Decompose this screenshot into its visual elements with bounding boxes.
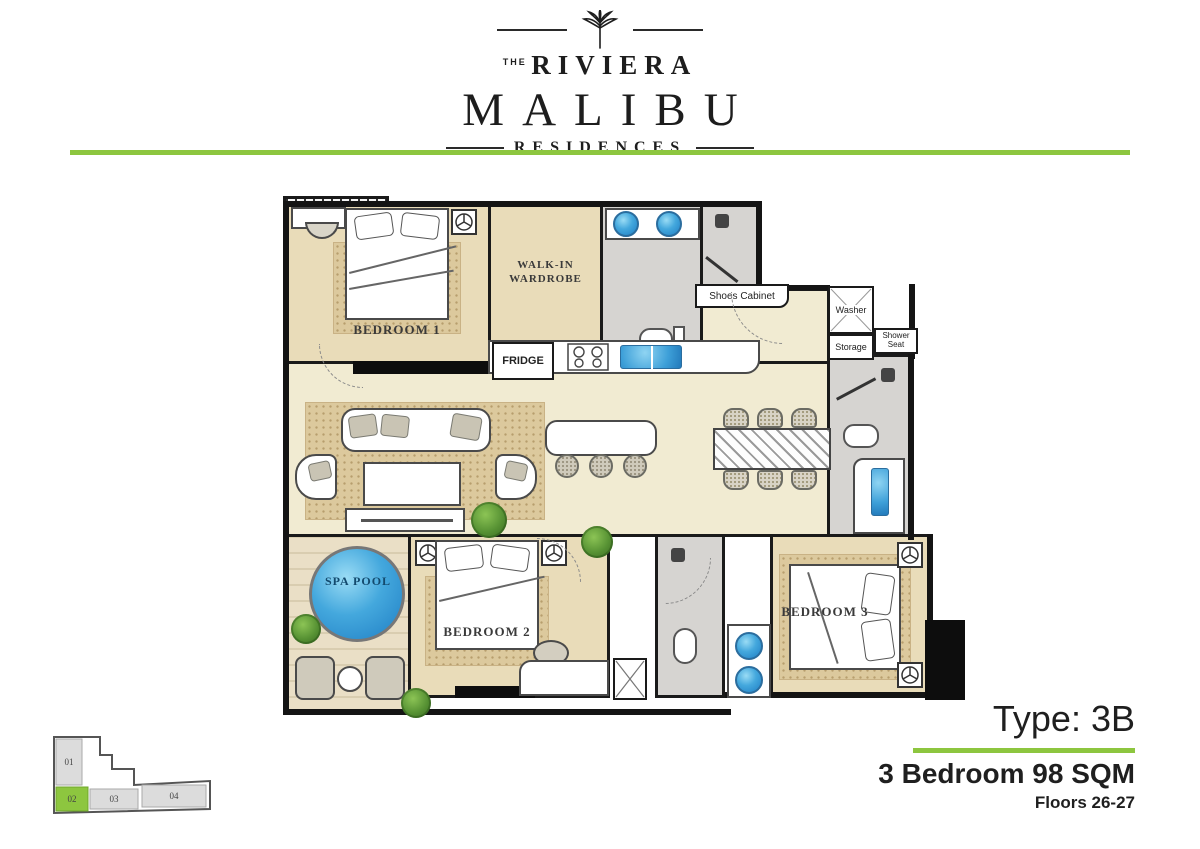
brand-title: MALIBU	[0, 83, 1200, 137]
armchair-cushion	[307, 460, 332, 482]
unit-01-label: 01	[65, 757, 74, 767]
sofa-cushion	[449, 413, 483, 442]
pillow	[860, 618, 895, 662]
kitchen-counter-dark	[353, 361, 491, 374]
dining-chair	[791, 470, 817, 490]
unit-02-label: 02	[68, 794, 77, 804]
sofa-cushion	[348, 413, 379, 439]
wall-bath2-right	[908, 354, 914, 540]
brand-logo: THE RIVIERA MALIBU RESIDENCES	[0, 10, 1200, 157]
unit-04-label: 04	[170, 791, 180, 801]
bar-stool	[555, 454, 579, 478]
dining-chair	[757, 470, 783, 490]
plant	[291, 614, 321, 644]
plant	[401, 688, 431, 718]
building-key-plan: 01 02 03 04	[42, 733, 232, 823]
kitchen-sink	[620, 345, 682, 369]
wall-right-upper	[756, 201, 762, 291]
shower-head-icon	[881, 368, 895, 382]
dining-chair	[791, 408, 817, 428]
toilet	[843, 424, 879, 448]
dining-chair	[723, 470, 749, 490]
unit-floors-label: Floors 26-27	[1035, 793, 1135, 813]
bedroom2-label: BEDROOM 2	[425, 624, 549, 640]
armchair	[495, 454, 537, 500]
unit-type-label: Type: 3B	[993, 698, 1135, 740]
toilet	[673, 628, 697, 664]
storage-box: Storage	[828, 334, 874, 360]
brand-name: RIVIERA	[531, 50, 697, 80]
sofa	[341, 408, 491, 452]
subtitle-line-left	[446, 147, 504, 149]
dining-chair	[723, 408, 749, 428]
armchair	[295, 454, 337, 500]
lounge-chair	[365, 656, 405, 700]
fridge-box: FRIDGE	[492, 342, 554, 380]
armchair-cushion	[503, 460, 528, 482]
blanket-fold	[439, 576, 545, 602]
lounge-chair	[295, 656, 335, 700]
palm-ornament-icon	[577, 10, 623, 50]
pillow	[400, 212, 441, 240]
blanket-fold	[349, 270, 454, 290]
dining-chair	[757, 408, 783, 428]
bedroom2-desk	[519, 660, 609, 696]
floor-plan: BEDROOM 1 WALK-IN WARDROBE Shoes Cabinet…	[283, 196, 965, 720]
logo-ornament-row	[0, 10, 1200, 50]
basin-round	[656, 211, 682, 237]
pillow	[490, 543, 531, 572]
kitchen-island	[545, 420, 657, 456]
shaft-box	[613, 658, 647, 700]
bedroom3-label: BEDROOM 3	[781, 604, 869, 620]
service-shaft-block	[925, 620, 965, 700]
sofa-cushion	[380, 414, 410, 439]
wall-bottom-left	[283, 709, 731, 715]
ac-fan-icon	[897, 542, 923, 568]
washer-label: Washer	[834, 305, 869, 315]
basin-round	[735, 632, 763, 660]
plant	[471, 502, 507, 538]
shower-seat-box: Shower Seat	[874, 328, 918, 354]
sink-divider	[651, 346, 653, 370]
logo-line-right	[633, 29, 703, 31]
washer-box: Washer	[828, 286, 874, 334]
stove-icon	[567, 343, 609, 371]
coffee-table	[363, 462, 461, 506]
tv-screen	[361, 519, 453, 522]
plant	[581, 526, 613, 558]
bedroom1-bed	[345, 208, 449, 320]
bar-stool	[589, 454, 613, 478]
bar-stool	[623, 454, 647, 478]
header-divider	[70, 150, 1130, 155]
blanket-fold	[349, 245, 456, 273]
basin-round	[613, 211, 639, 237]
pillow	[354, 211, 395, 240]
shower-head-icon	[715, 214, 729, 228]
unit-spec-label: 3 Bedroom 98 SQM	[878, 758, 1135, 790]
info-divider	[913, 748, 1135, 753]
basin-rect	[871, 468, 889, 516]
brand-riviera: THE RIVIERA	[0, 50, 1200, 81]
ac-fan-icon	[897, 662, 923, 688]
side-table	[337, 666, 363, 692]
tv-console	[345, 508, 465, 532]
spa-pool	[309, 546, 405, 642]
subtitle-line-right	[696, 147, 754, 149]
walkin-label: WALK-IN WARDROBE	[488, 258, 603, 287]
basin-round	[735, 666, 763, 694]
brand-the: THE	[503, 57, 527, 67]
unit-03-label: 03	[110, 794, 120, 804]
dining-table	[713, 428, 831, 470]
ac-fan-icon	[451, 209, 477, 235]
wall-left	[283, 201, 289, 715]
logo-line-left	[497, 29, 567, 31]
pillow	[444, 544, 485, 572]
wall-top	[283, 201, 762, 207]
spa-pool-label: SPA POOL	[323, 574, 393, 588]
bedroom1-label: BEDROOM 1	[333, 322, 461, 338]
